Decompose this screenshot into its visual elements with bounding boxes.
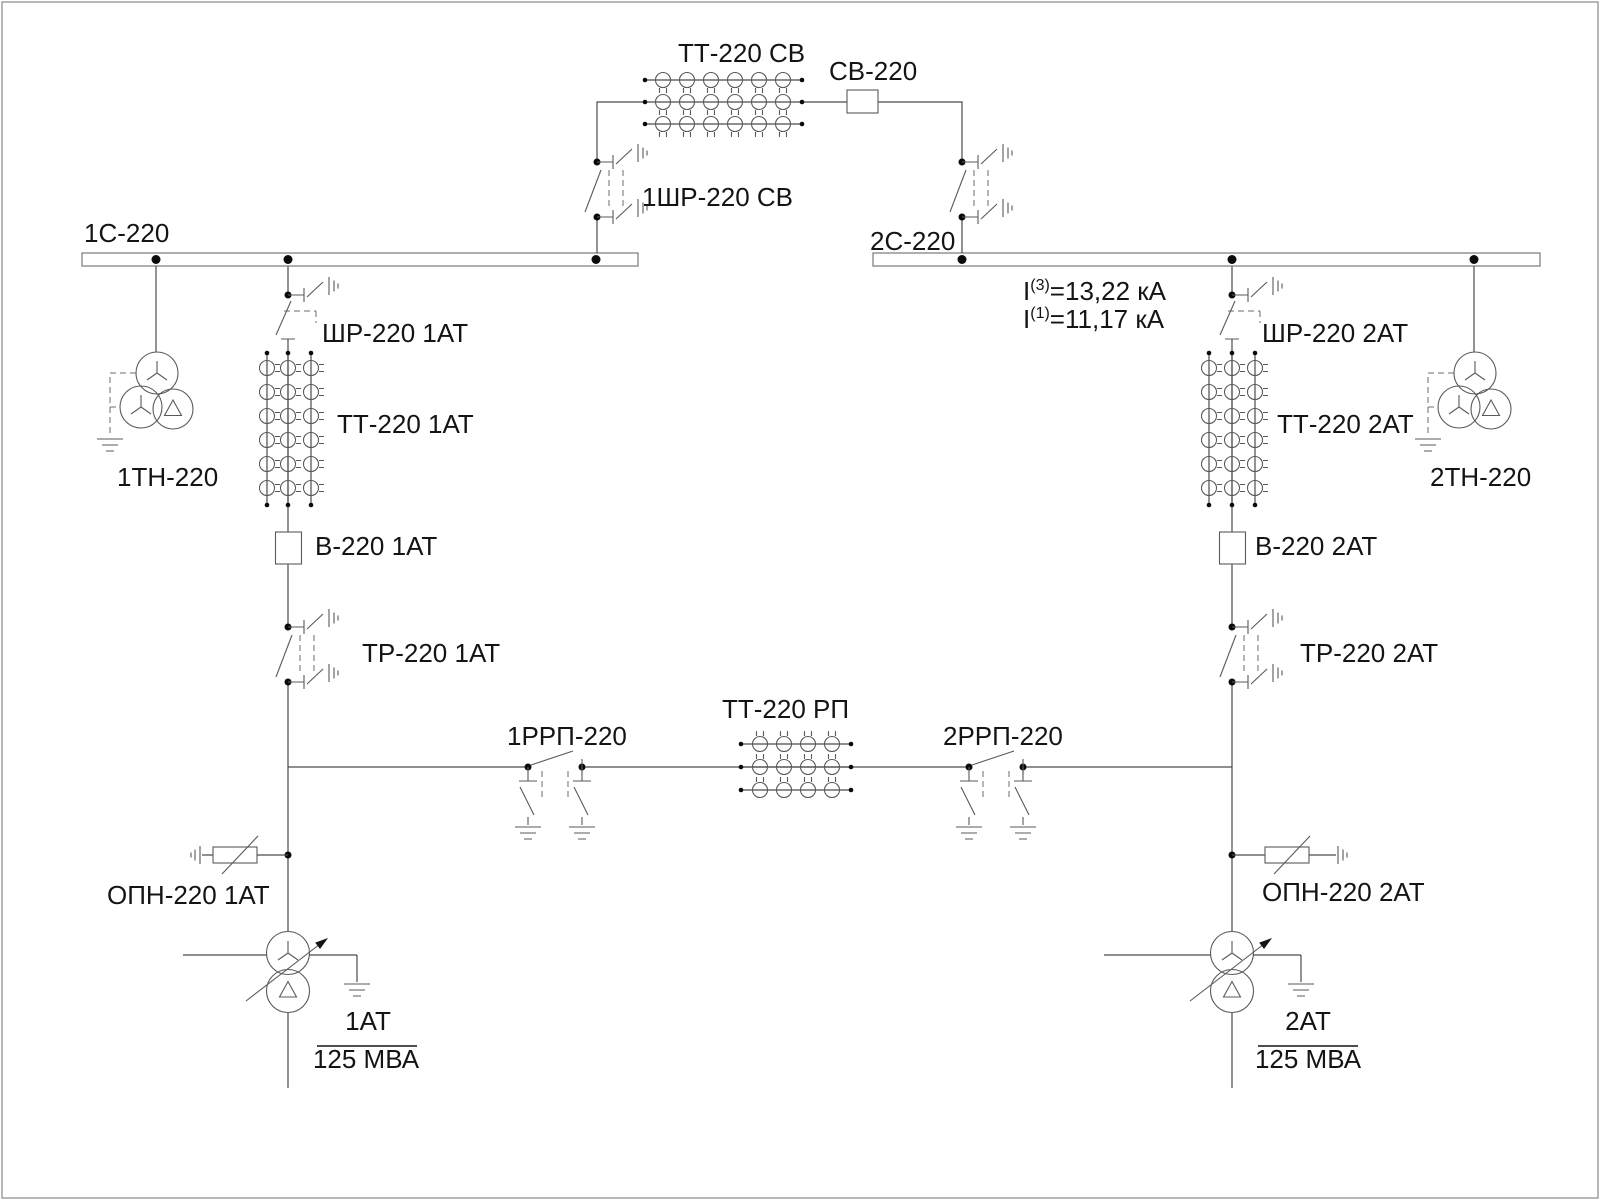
bay2-arrester-symbol	[1229, 836, 1348, 874]
coupler-ct-symbol	[643, 73, 805, 138]
bay2-vt-symbol	[1415, 266, 1511, 451]
bus-2-label: 2С-220	[870, 226, 955, 256]
bay2-breaker-label: В-220 2АТ	[1255, 531, 1377, 561]
bay2-ct-symbol	[1202, 351, 1269, 508]
bay2-transformer-rating: 125 МВА	[1255, 1044, 1362, 1074]
bay1-transformer-symbol	[183, 932, 370, 1013]
bay2-tr-disconnector-label: ТР-220 2АТ	[1300, 638, 1438, 668]
bay1-feeder	[183, 266, 370, 1088]
link-disconnector-2-label: 2РРП-220	[943, 721, 1063, 751]
bay2-tr-disconnector-symbol	[1220, 609, 1282, 689]
coupler-breaker-label: СВ-220	[829, 56, 917, 86]
fault-1ph-base: I	[1023, 304, 1030, 334]
bay1-transformer-rating: 125 МВА	[313, 1044, 420, 1074]
bay2-transformer-symbol	[1104, 932, 1314, 1013]
fault-3ph-base: I	[1023, 276, 1030, 306]
bay1-vt-label: 1ТН-220	[117, 462, 218, 492]
bay1-ct-label: ТТ-220 1АТ	[337, 409, 474, 439]
bay1-arrester-label: ОПН-220 1АТ	[107, 880, 270, 910]
coupler-disconnector-label: 1ШР-220 СВ	[642, 182, 793, 212]
link-ct-label: ТТ-220 РП	[722, 694, 849, 724]
link-ct-symbol	[739, 731, 854, 798]
bay1-ct-symbol	[260, 351, 325, 508]
bay2-ct-label: ТТ-220 2АТ	[1277, 409, 1414, 439]
bay1-tr-disconnector-label: ТР-220 1АТ	[362, 638, 500, 668]
bus-1-label: 1С-220	[84, 218, 169, 248]
transfer-link	[288, 731, 1232, 839]
coupler-disconnector-2-symbol	[950, 144, 1012, 224]
fault-1ph-value: =11,17 кА	[1050, 304, 1165, 334]
bay1-vt-symbol	[97, 266, 193, 451]
single-line-diagram-page: 1С-220 2С-220 I(3)=13,22 кА I(1)=11,17 к…	[0, 0, 1600, 1200]
bay2-transformer-name: 2АТ	[1285, 1006, 1331, 1036]
fault-3ph-sup: (3)	[1030, 277, 1050, 294]
single-line-diagram-canvas: 1С-220 2С-220 I(3)=13,22 кА I(1)=11,17 к…	[0, 0, 1600, 1200]
bay1-transformer-name: 1АТ	[345, 1006, 391, 1036]
bay1-bus-disconnector-label: ШР-220 1АТ	[322, 318, 468, 348]
fault-1ph-sup: (1)	[1030, 305, 1050, 322]
link-disconnector-1-label: 1РРП-220	[507, 721, 627, 751]
busbar-2	[873, 253, 1540, 266]
bay2-vt-label: 2ТН-220	[1430, 462, 1531, 492]
coupler-breaker-symbol	[847, 90, 878, 113]
fault-current-3ph: I(3)=13,22 кА	[1023, 276, 1167, 306]
bay2-bus-disconnector-label: ШР-220 2АТ	[1262, 318, 1408, 348]
busbar-1	[82, 253, 638, 266]
bay1-breaker-symbol	[276, 532, 302, 564]
coupler-disconnector-1-symbol	[585, 144, 647, 224]
fault-current-1ph: I(1)=11,17 кА	[1023, 304, 1165, 334]
bay1-tr-disconnector-symbol	[276, 609, 338, 689]
link-disconnector-2-symbol	[956, 751, 1036, 839]
bay1-arrester-symbol	[191, 836, 292, 874]
bay1-breaker-label: В-220 1АТ	[315, 531, 437, 561]
bay2-arrester-label: ОПН-220 2АТ	[1262, 877, 1425, 907]
coupler-ct-label: ТТ-220 СВ	[678, 38, 805, 68]
fault-3ph-value: =13,22 кА	[1050, 276, 1167, 306]
drawing-border	[2, 2, 1598, 1198]
bay2-breaker-symbol	[1220, 532, 1246, 564]
bay2-feeder	[1104, 266, 1347, 1088]
link-disconnector-1-symbol	[515, 751, 595, 839]
